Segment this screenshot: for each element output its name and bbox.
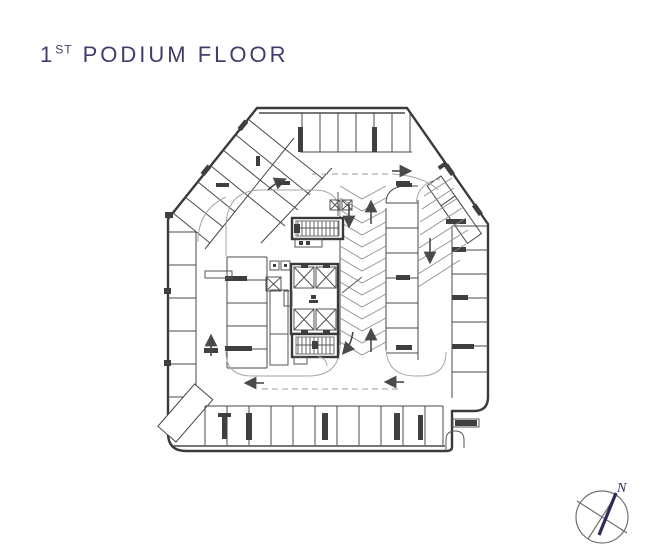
ramp-wall-end <box>446 431 464 451</box>
floor-plan: N <box>0 0 660 556</box>
elevator-core <box>284 264 338 334</box>
bottom-parking-row <box>205 406 443 445</box>
core <box>266 200 352 366</box>
page: 1STPODIUM FLOOR <box>0 0 660 556</box>
north-compass: N <box>576 481 628 543</box>
right-parking-column <box>446 219 488 398</box>
column-mark <box>455 420 477 426</box>
ramp-chevrons <box>340 186 386 355</box>
top-parking-row <box>298 113 412 152</box>
stair-core-lower <box>292 334 338 366</box>
compass-north-label: N <box>616 481 627 496</box>
stair-core-upper <box>292 218 343 247</box>
compass-needle <box>599 493 616 535</box>
t-column-mark <box>218 413 231 439</box>
column-marks <box>256 156 446 187</box>
inner-left-parking <box>204 257 288 368</box>
